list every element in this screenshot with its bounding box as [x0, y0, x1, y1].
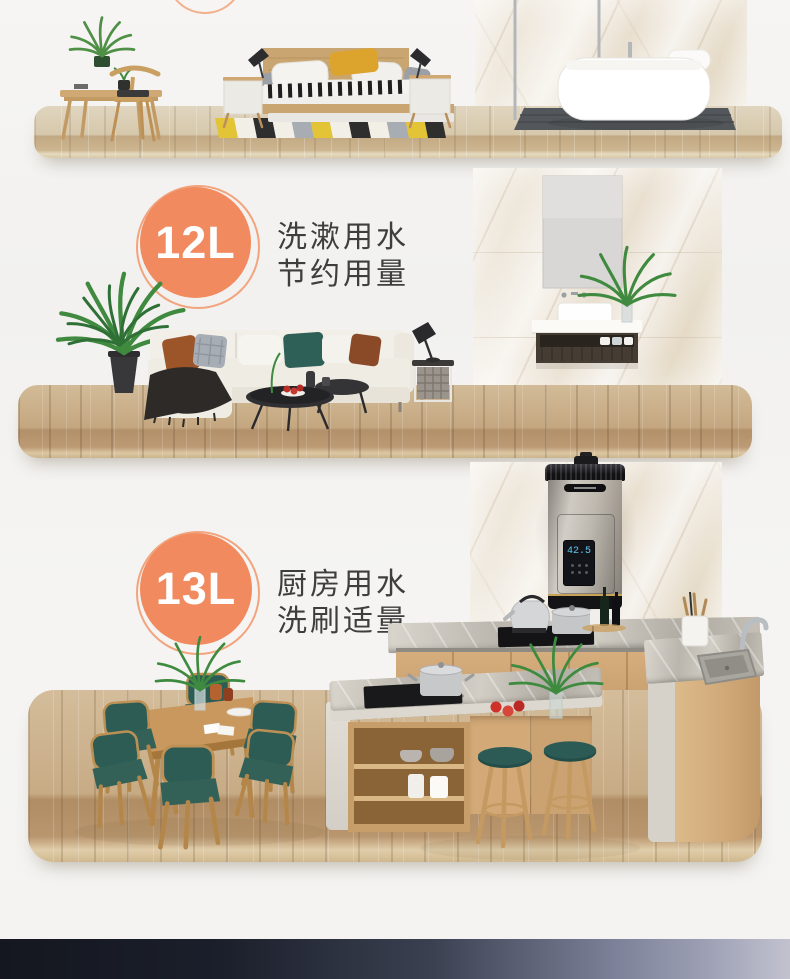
bedroom-bath-illustration: [0, 0, 790, 170]
kitchen-sink: [698, 650, 756, 684]
writing-desk: [60, 18, 162, 138]
bar-stool-right: [544, 741, 596, 837]
kettle: [505, 597, 549, 634]
living-room-illustration: [0, 165, 790, 465]
plaid-pillow: [192, 333, 227, 368]
product-feature-poster: 12L 洗漱用水 节约用量: [0, 0, 790, 979]
side-table-lamp: [412, 322, 454, 401]
island-items: [409, 638, 602, 718]
utensil-cup: [682, 592, 708, 646]
sofa: [144, 330, 414, 427]
kitchen-illustration: [0, 460, 790, 880]
bar-stool-left: [478, 747, 532, 846]
vanity-unit: [532, 176, 675, 369]
footer-section-strip: [0, 939, 790, 979]
